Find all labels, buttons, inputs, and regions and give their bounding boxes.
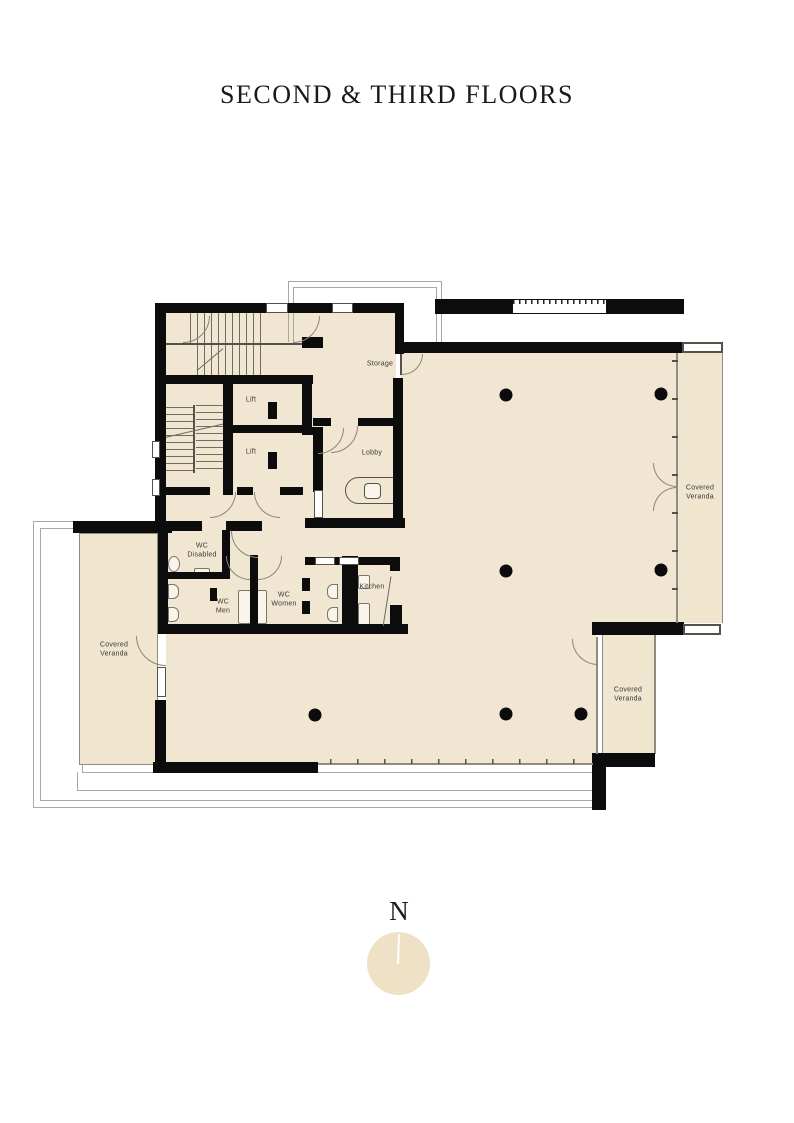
- wall-segment: [280, 487, 303, 495]
- staircase-upper-landing-line: [166, 343, 302, 345]
- wall-segment: [359, 557, 390, 565]
- wall-segment: [390, 557, 400, 571]
- wall-segment: [155, 375, 313, 384]
- compass-circle: [367, 932, 430, 995]
- column-marker: [309, 709, 322, 722]
- wc-disabled-toilet: [168, 556, 180, 572]
- room-label-kitchen: Kitchen: [352, 582, 392, 591]
- column-marker: [500, 708, 513, 721]
- wall-segment: [313, 418, 331, 426]
- door-leaf: [400, 354, 402, 375]
- window: [339, 557, 359, 565]
- wall-segment: [250, 555, 258, 630]
- staircase-lower-divider: [193, 405, 195, 473]
- window: [152, 479, 160, 496]
- terrace-step-line-4: [77, 790, 592, 791]
- column-marker: [655, 388, 668, 401]
- room-label-lift-lower: Lift: [236, 447, 266, 456]
- room-label-lobby: Lobby: [352, 448, 392, 457]
- staircase-lower-run-2: [196, 405, 224, 473]
- terrace-outline-inner-top: [40, 528, 73, 529]
- wall-segment: [390, 605, 402, 627]
- glass-wall-south-mullions: [330, 759, 592, 764]
- wall-segment: [607, 299, 684, 314]
- wall-segment: [358, 418, 395, 426]
- room-label-wc-disabled: WC Disabled: [185, 542, 219, 561]
- room-label-veranda-southeast: Covered Veranda: [610, 686, 646, 705]
- window: [315, 557, 335, 565]
- wall-segment: [158, 624, 408, 634]
- window: [157, 667, 166, 697]
- wall-segment: [73, 521, 158, 533]
- compass-north-label: N: [352, 896, 446, 927]
- wall-segment: [226, 521, 262, 531]
- window: [682, 342, 723, 353]
- column-marker: [500, 389, 513, 402]
- wall-segment: [305, 518, 405, 528]
- wall-segment: [222, 530, 230, 579]
- wall-segment: [153, 762, 318, 773]
- terrace-step-line-3: [77, 772, 78, 790]
- veranda-right-outer-edge: [722, 353, 723, 623]
- wall-segment: [158, 521, 202, 531]
- room-label-wc-men: WC Men: [211, 598, 235, 617]
- wall-segment: [166, 487, 210, 495]
- wall-segment: [305, 557, 315, 565]
- wall-segment: [592, 753, 606, 810]
- room-label-lift-upper: Lift: [236, 395, 266, 404]
- wall-segment: [268, 402, 277, 419]
- wc-men-toilet-2: [168, 607, 179, 622]
- room-label-storage: Storage: [360, 359, 400, 368]
- wall-segment: [223, 383, 233, 495]
- wall-segment: [403, 342, 683, 353]
- wall-segment: [158, 533, 168, 633]
- room-label-veranda-left: Covered Veranda: [96, 641, 132, 660]
- wc-men-toilet-1: [168, 584, 179, 599]
- roof-outline-inner: [293, 287, 437, 342]
- wall-segment: [592, 622, 684, 635]
- wall-segment: [435, 299, 512, 314]
- wall-segment: [233, 425, 303, 433]
- staircase-upper-run-2: [197, 344, 262, 375]
- column-marker: [655, 564, 668, 577]
- wall-segment: [393, 378, 403, 528]
- wc-women-toilet-1: [327, 584, 338, 599]
- wall-segment: [342, 556, 358, 630]
- window: [683, 624, 721, 635]
- wall-segment: [302, 601, 310, 614]
- room-label-veranda-right: Covered Veranda: [682, 484, 718, 503]
- window: [266, 303, 288, 313]
- compass-needle: [397, 934, 400, 964]
- window: [332, 303, 353, 313]
- door-leaf-panel: [314, 490, 323, 518]
- floor-plan-page: SECOND & THIRD FLOORS: [0, 0, 794, 1123]
- wall-segment: [167, 572, 223, 579]
- window: [152, 441, 160, 458]
- wall-segment: [268, 452, 277, 469]
- wc-women-toilet-2: [327, 607, 338, 622]
- louver-window: [512, 299, 607, 314]
- staircase-lower-run-1: [166, 407, 193, 473]
- terrace-outline-outer-top: [33, 521, 73, 522]
- wall-segment: [302, 578, 310, 591]
- page-title: SECOND & THIRD FLOORS: [0, 80, 794, 110]
- column-marker: [500, 565, 513, 578]
- room-label-wc-women: WC Women: [268, 591, 300, 610]
- wall-segment: [155, 700, 166, 763]
- wall-segment: [237, 487, 253, 495]
- reception-chair: [364, 483, 381, 499]
- wall-segment: [288, 303, 332, 313]
- wall-segment: [155, 303, 266, 313]
- veranda-southeast-outer-edge: [655, 635, 656, 754]
- column-marker: [575, 708, 588, 721]
